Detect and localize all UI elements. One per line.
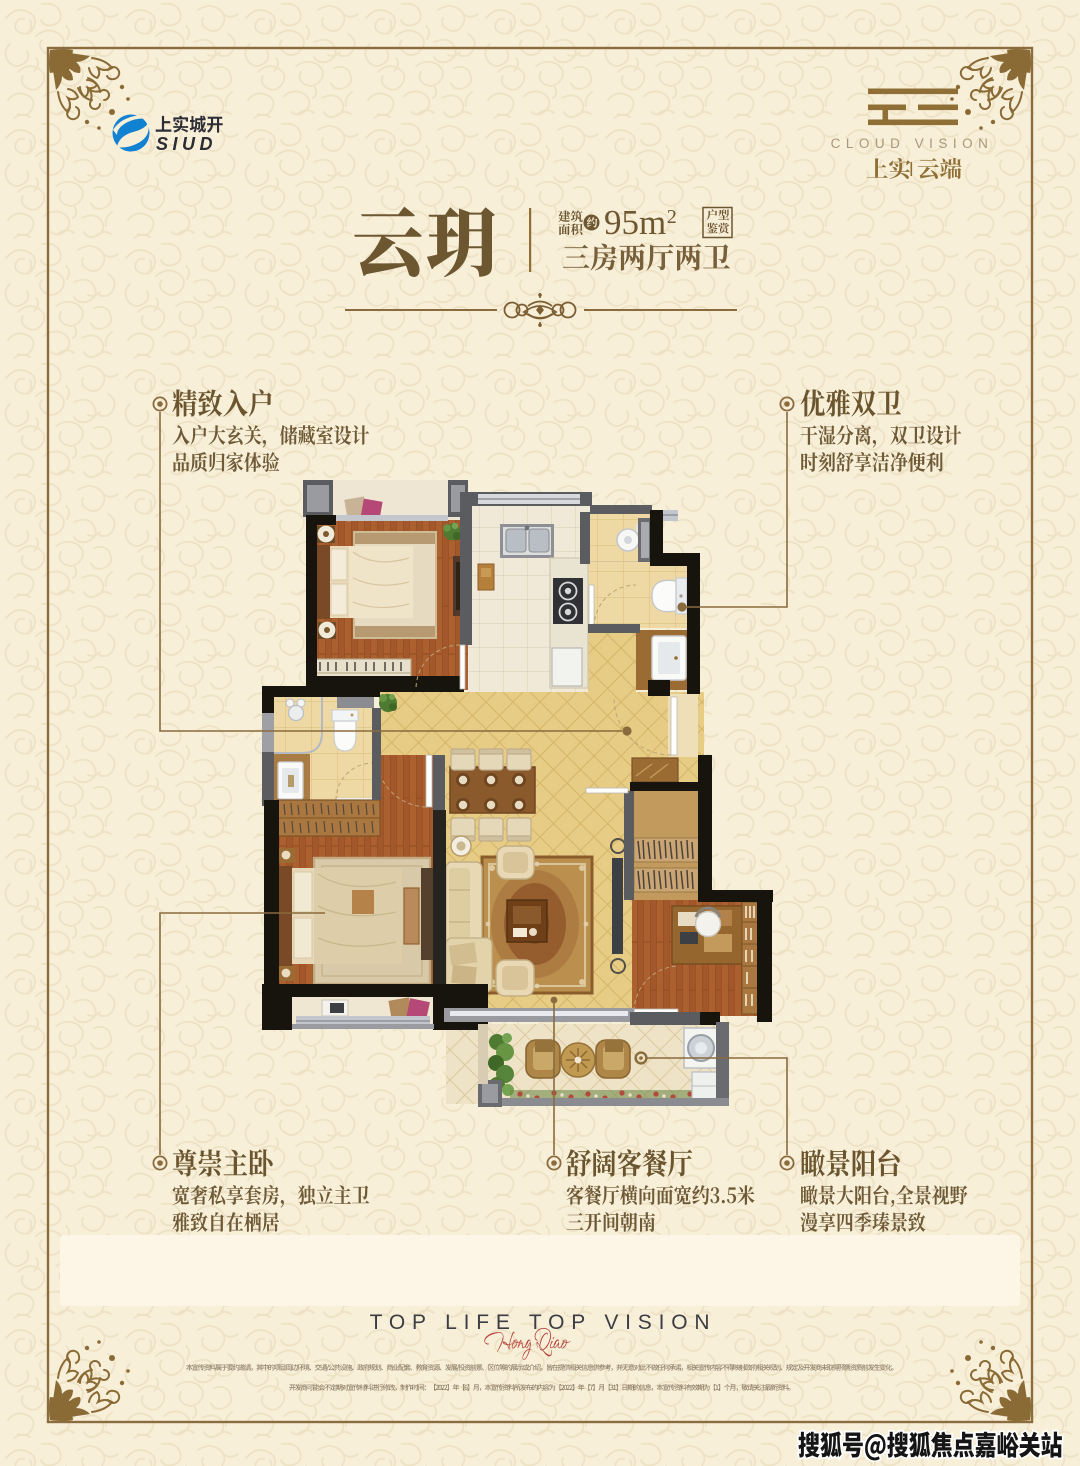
svg-text:TOP LIFE TOP VISION: TOP LIFE TOP VISION [370, 1311, 717, 1334]
svg-text:SIUD: SIUD [156, 134, 217, 154]
svg-text:95m2: 95m2 [604, 203, 677, 242]
svg-text:CLOUD VISION: CLOUD VISION [831, 136, 994, 151]
